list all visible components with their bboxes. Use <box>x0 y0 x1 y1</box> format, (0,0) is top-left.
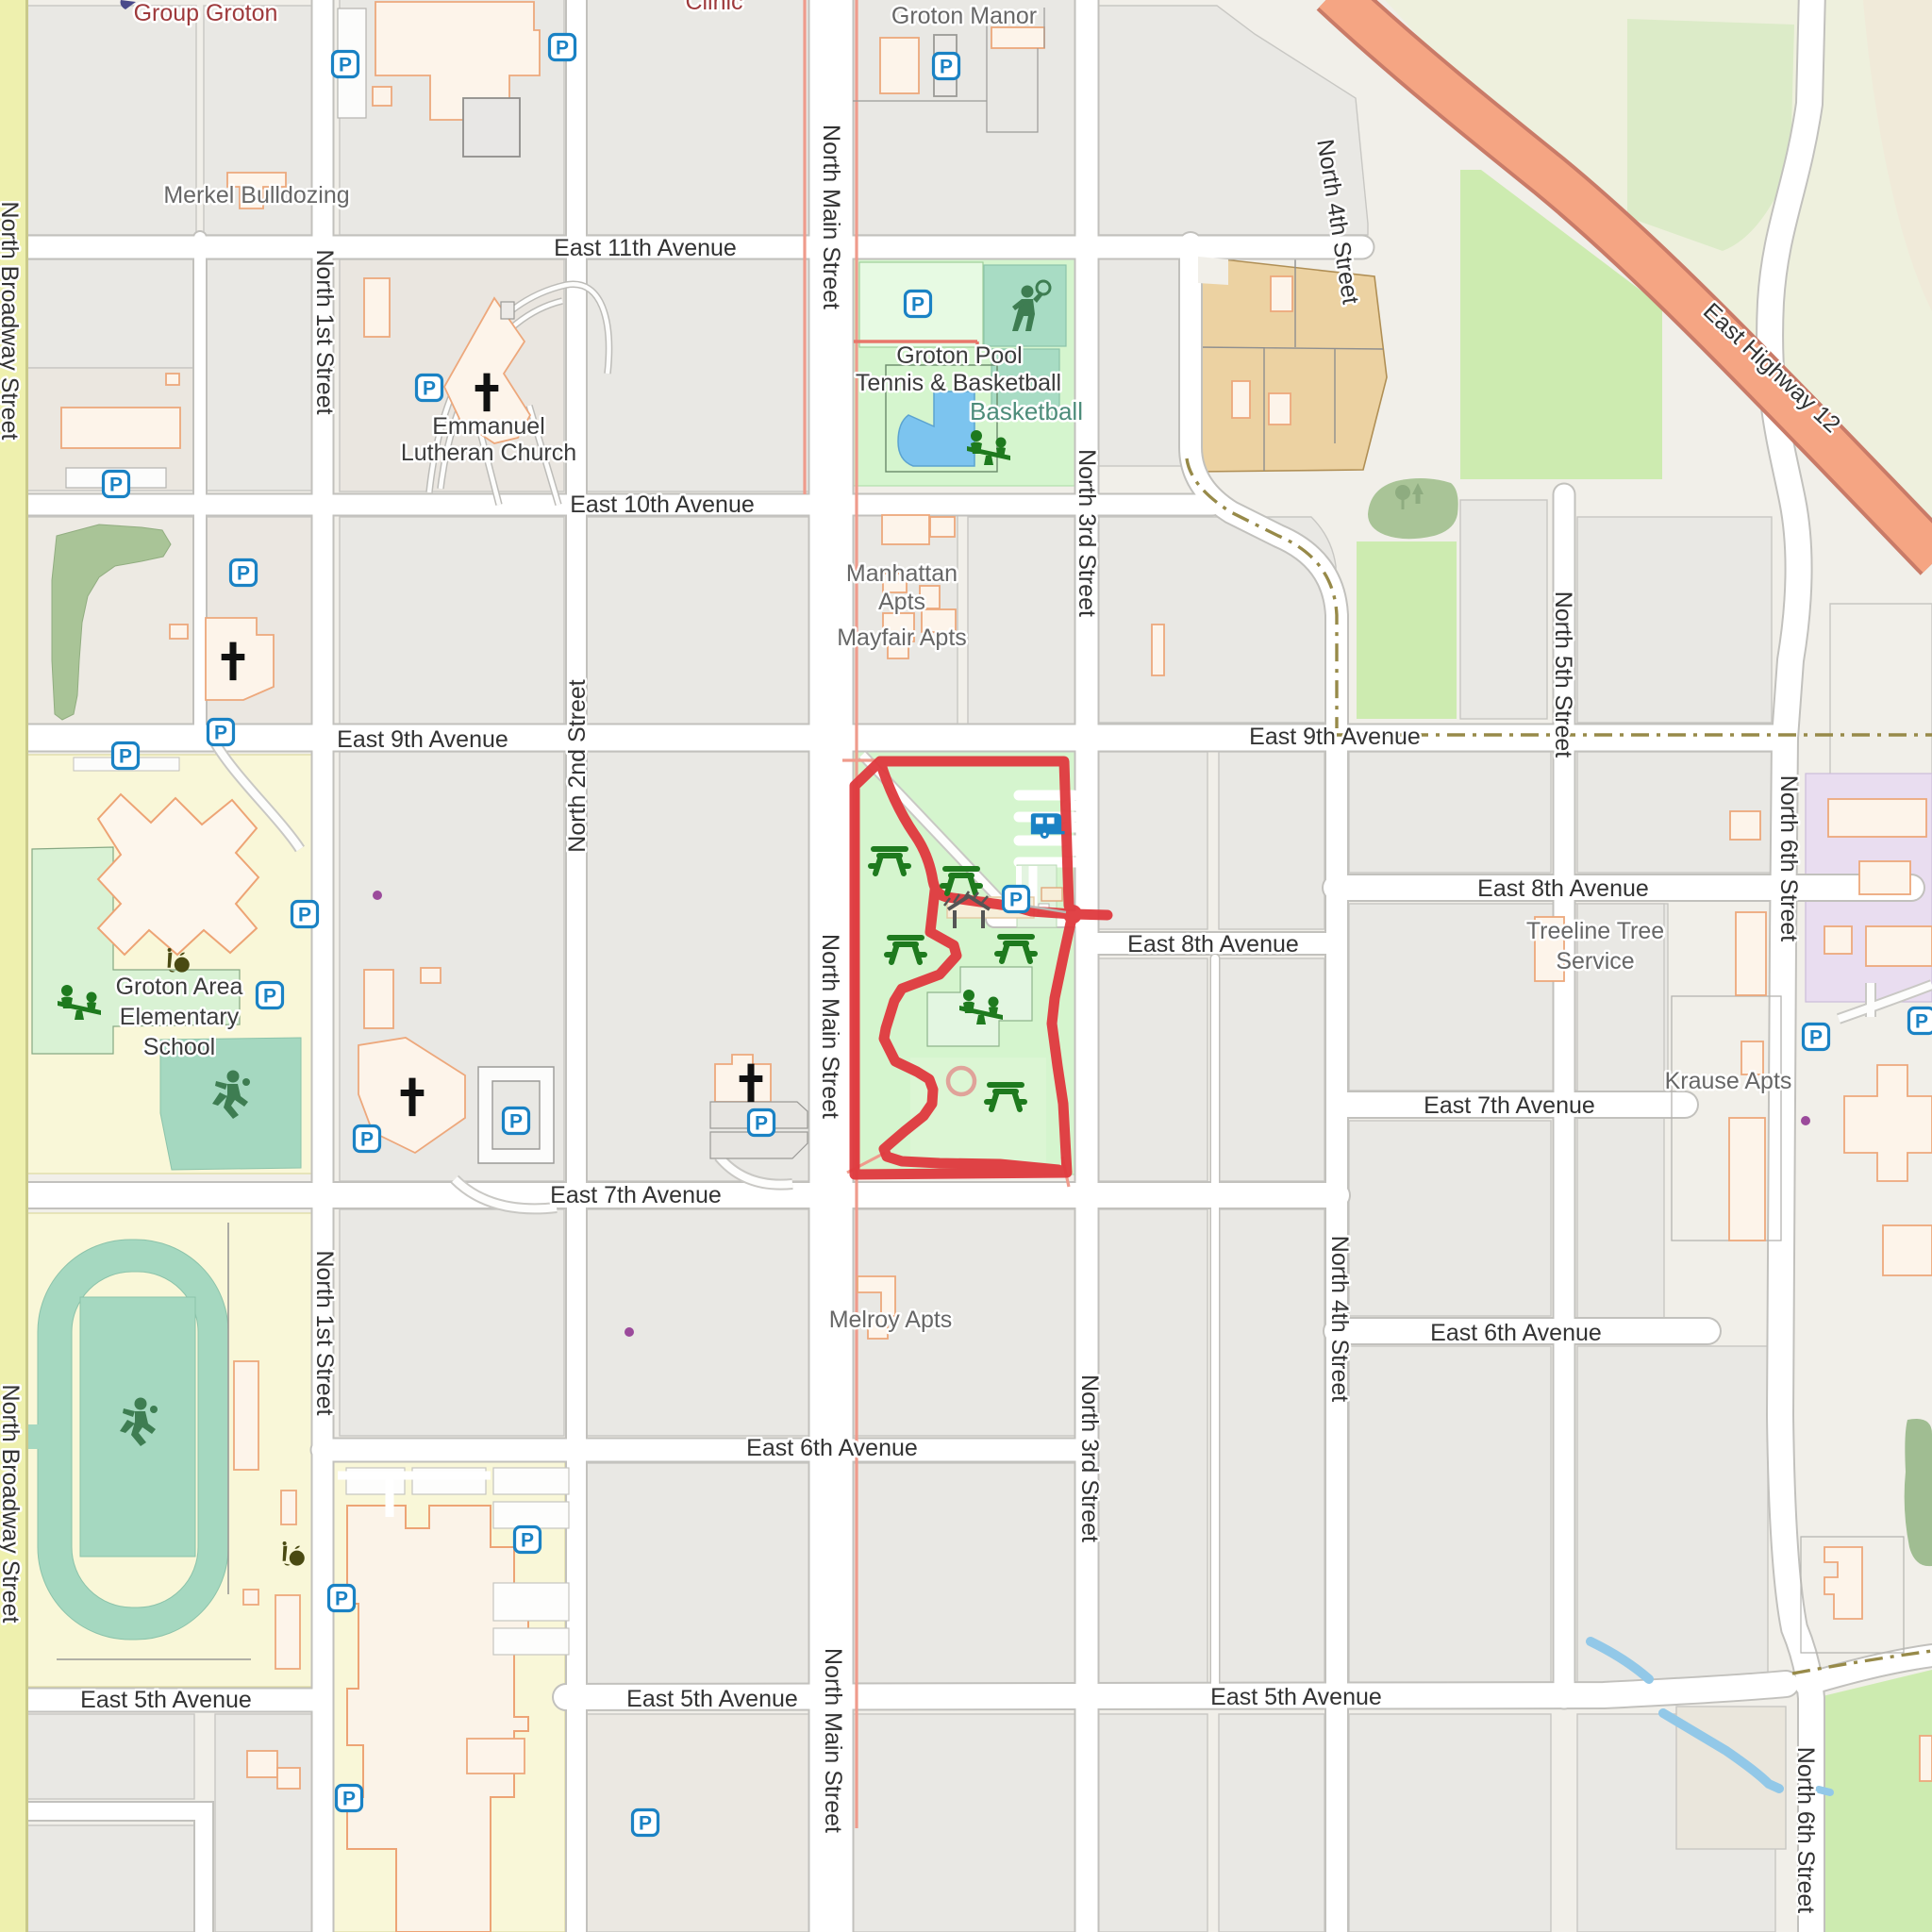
svg-text:Manhattan: Manhattan <box>846 560 958 587</box>
svg-text:Clinic: Clinic <box>685 0 742 15</box>
svg-text:North Main Street: North Main Street <box>817 934 843 1119</box>
svg-text:East 5th Avenue: East 5th Avenue <box>1210 1684 1382 1710</box>
svg-text:Emmanuel: Emmanuel <box>432 413 545 440</box>
svg-text:Tennis & Basketball: Tennis & Basketball <box>856 370 1061 396</box>
svg-text:East 11th Avenue: East 11th Avenue <box>554 235 737 261</box>
svg-text:Group Groton: Group Groton <box>134 0 278 26</box>
svg-text:Groton Manor: Groton Manor <box>891 3 1037 29</box>
svg-text:East 7th Avenue: East 7th Avenue <box>550 1182 722 1208</box>
svg-text:Groton Area: Groton Area <box>116 974 243 1000</box>
svg-text:Melroy Apts: Melroy Apts <box>829 1307 953 1333</box>
svg-text:Elementary: Elementary <box>120 1004 240 1030</box>
svg-text:East 8th Avenue: East 8th Avenue <box>1127 931 1299 958</box>
svg-text:East 7th Avenue: East 7th Avenue <box>1424 1092 1595 1119</box>
svg-text:North 6th Street: North 6th Street <box>1775 775 1802 942</box>
svg-text:North 6th Street: North 6th Street <box>1792 1747 1819 1914</box>
svg-text:North 1st Street: North 1st Street <box>311 1250 338 1415</box>
svg-text:Lutheran Church: Lutheran Church <box>401 440 576 466</box>
svg-text:North Broadway Street: North Broadway Street <box>0 202 23 441</box>
svg-text:Basketball: Basketball <box>970 397 1083 425</box>
svg-text:School: School <box>143 1034 215 1060</box>
svg-text:Treeline Tree: Treeline Tree <box>1526 918 1664 944</box>
svg-text:North 2nd Street: North 2nd Street <box>564 679 591 852</box>
svg-text:North 1st Street: North 1st Street <box>311 249 338 414</box>
svg-text:Krause Apts: Krause Apts <box>1665 1068 1792 1094</box>
svg-text:North 4th Street: North 4th Street <box>1326 1236 1353 1403</box>
svg-text:East 9th Avenue: East 9th Avenue <box>337 726 508 753</box>
svg-text:East 9th Avenue: East 9th Avenue <box>1249 724 1421 750</box>
svg-text:East 5th Avenue: East 5th Avenue <box>80 1687 252 1713</box>
svg-text:North 5th Street: North 5th Street <box>1550 591 1576 758</box>
svg-text:Merkel Bulldozing: Merkel Bulldozing <box>163 182 349 208</box>
svg-text:East 6th Avenue: East 6th Avenue <box>746 1435 918 1461</box>
svg-text:North 3rd Street: North 3rd Street <box>1076 1374 1103 1542</box>
svg-text:North Broadway Street: North Broadway Street <box>0 1385 24 1624</box>
svg-text:Service: Service <box>1556 948 1634 974</box>
svg-text:East 5th Avenue: East 5th Avenue <box>626 1686 798 1712</box>
svg-text:East 10th Avenue: East 10th Avenue <box>570 491 755 518</box>
svg-text:Mayfair Apts: Mayfair Apts <box>837 625 967 651</box>
svg-text:Apts: Apts <box>878 589 925 615</box>
svg-text:North Main Street: North Main Street <box>818 125 844 309</box>
svg-text:Groton Pool: Groton Pool <box>896 342 1022 369</box>
svg-text:East 8th Avenue: East 8th Avenue <box>1477 875 1649 902</box>
svg-text:North 3rd Street: North 3rd Street <box>1074 449 1100 617</box>
svg-text:East 6th Avenue: East 6th Avenue <box>1430 1320 1602 1346</box>
svg-text:North Main Street: North Main Street <box>820 1648 846 1833</box>
